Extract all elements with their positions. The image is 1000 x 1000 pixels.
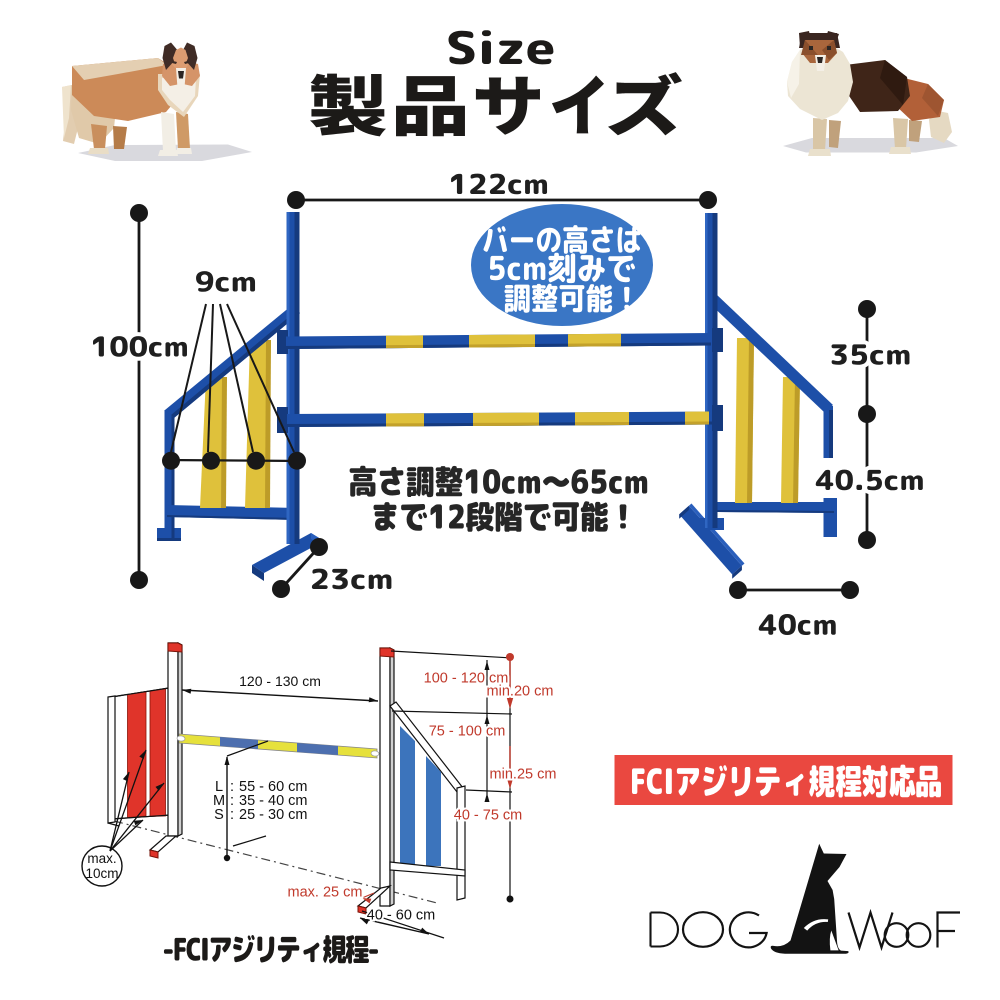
svg-text:min.20 cm: min.20 cm: [487, 684, 554, 700]
svg-text:min.25 cm: min.25 cm: [490, 767, 557, 783]
svg-text:S: S: [214, 807, 224, 823]
svg-text:120 - 130 cm: 120 - 130 cm: [239, 673, 321, 689]
svg-text:max.: max.: [87, 851, 116, 866]
svg-text::: :: [230, 807, 234, 823]
svg-text:40 - 75 cm: 40 - 75 cm: [454, 808, 523, 824]
svg-text:75 - 100 cm: 75 - 100 cm: [429, 724, 506, 740]
svg-text:max. 25 cm: max. 25 cm: [288, 885, 363, 901]
svg-text:40 - 60 cm: 40 - 60 cm: [367, 908, 436, 924]
svg-text:10cm: 10cm: [85, 866, 118, 881]
svg-text:25 - 30 cm: 25 - 30 cm: [239, 807, 308, 823]
